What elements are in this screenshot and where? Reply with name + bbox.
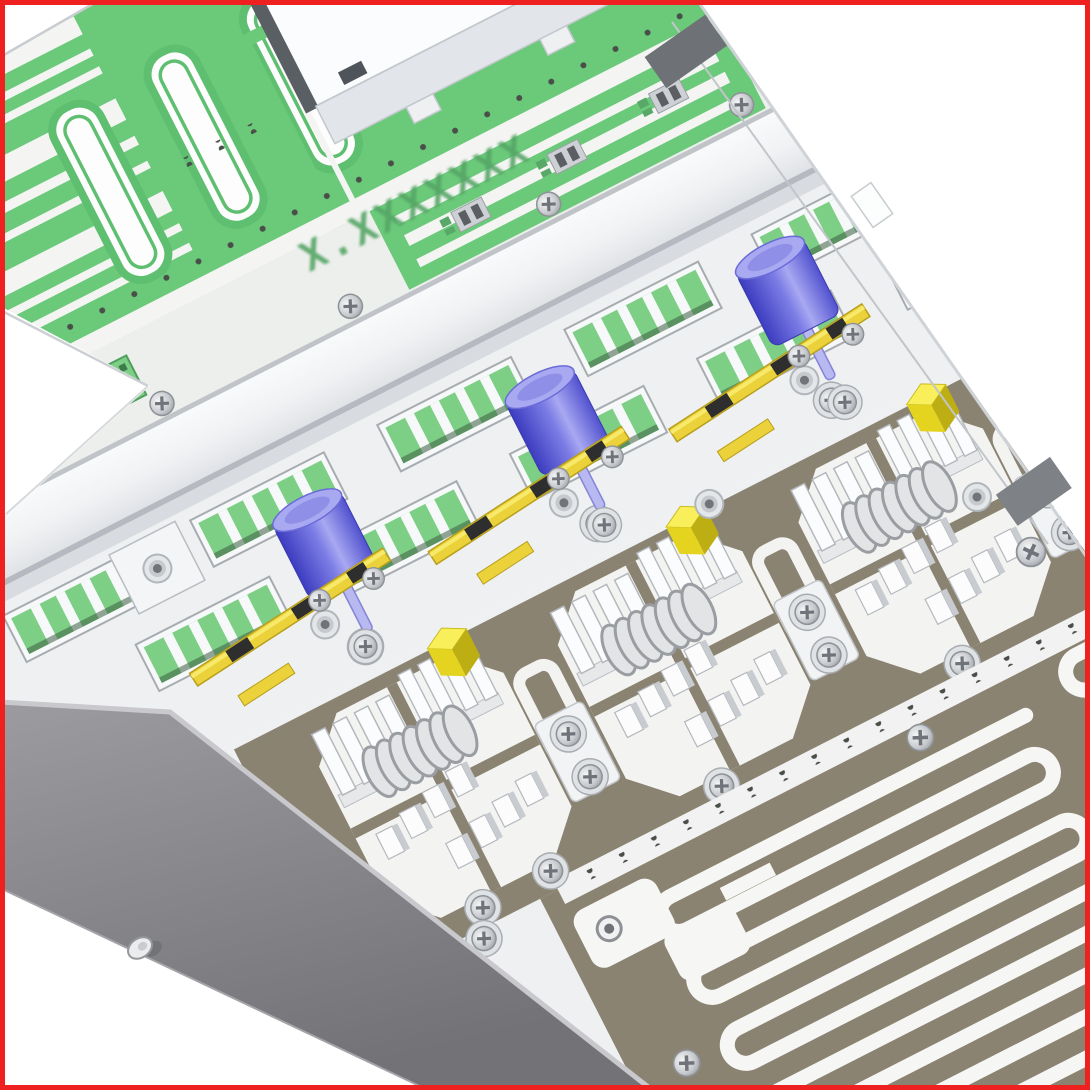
cad-scene: X.XXXXXXX: [0, 0, 1090, 1090]
pcb-assembly-render: X.XXXXXXX: [0, 0, 1090, 1090]
